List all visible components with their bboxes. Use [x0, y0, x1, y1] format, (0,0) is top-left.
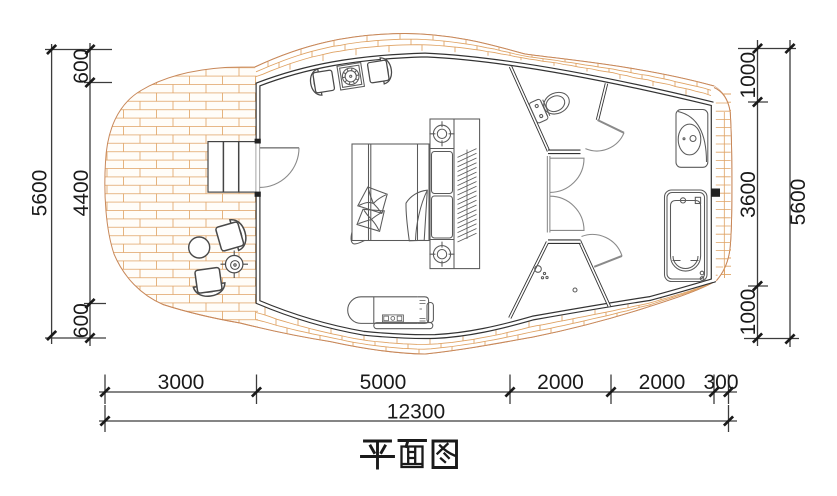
svg-text:5000: 5000 [360, 371, 407, 394]
svg-text:600: 600 [70, 49, 93, 84]
svg-text:300: 300 [703, 371, 738, 394]
svg-text:1000: 1000 [737, 52, 760, 99]
svg-text:2000: 2000 [537, 371, 584, 394]
svg-text:3000: 3000 [158, 371, 205, 394]
svg-text:4400: 4400 [70, 170, 93, 217]
svg-text:5600: 5600 [29, 170, 52, 217]
svg-text:5600: 5600 [787, 179, 810, 226]
svg-text:2000: 2000 [639, 371, 686, 394]
svg-text:12300: 12300 [387, 401, 445, 424]
svg-text:600: 600 [70, 303, 93, 338]
svg-text:3600: 3600 [737, 171, 760, 218]
svg-text:1000: 1000 [737, 289, 760, 336]
